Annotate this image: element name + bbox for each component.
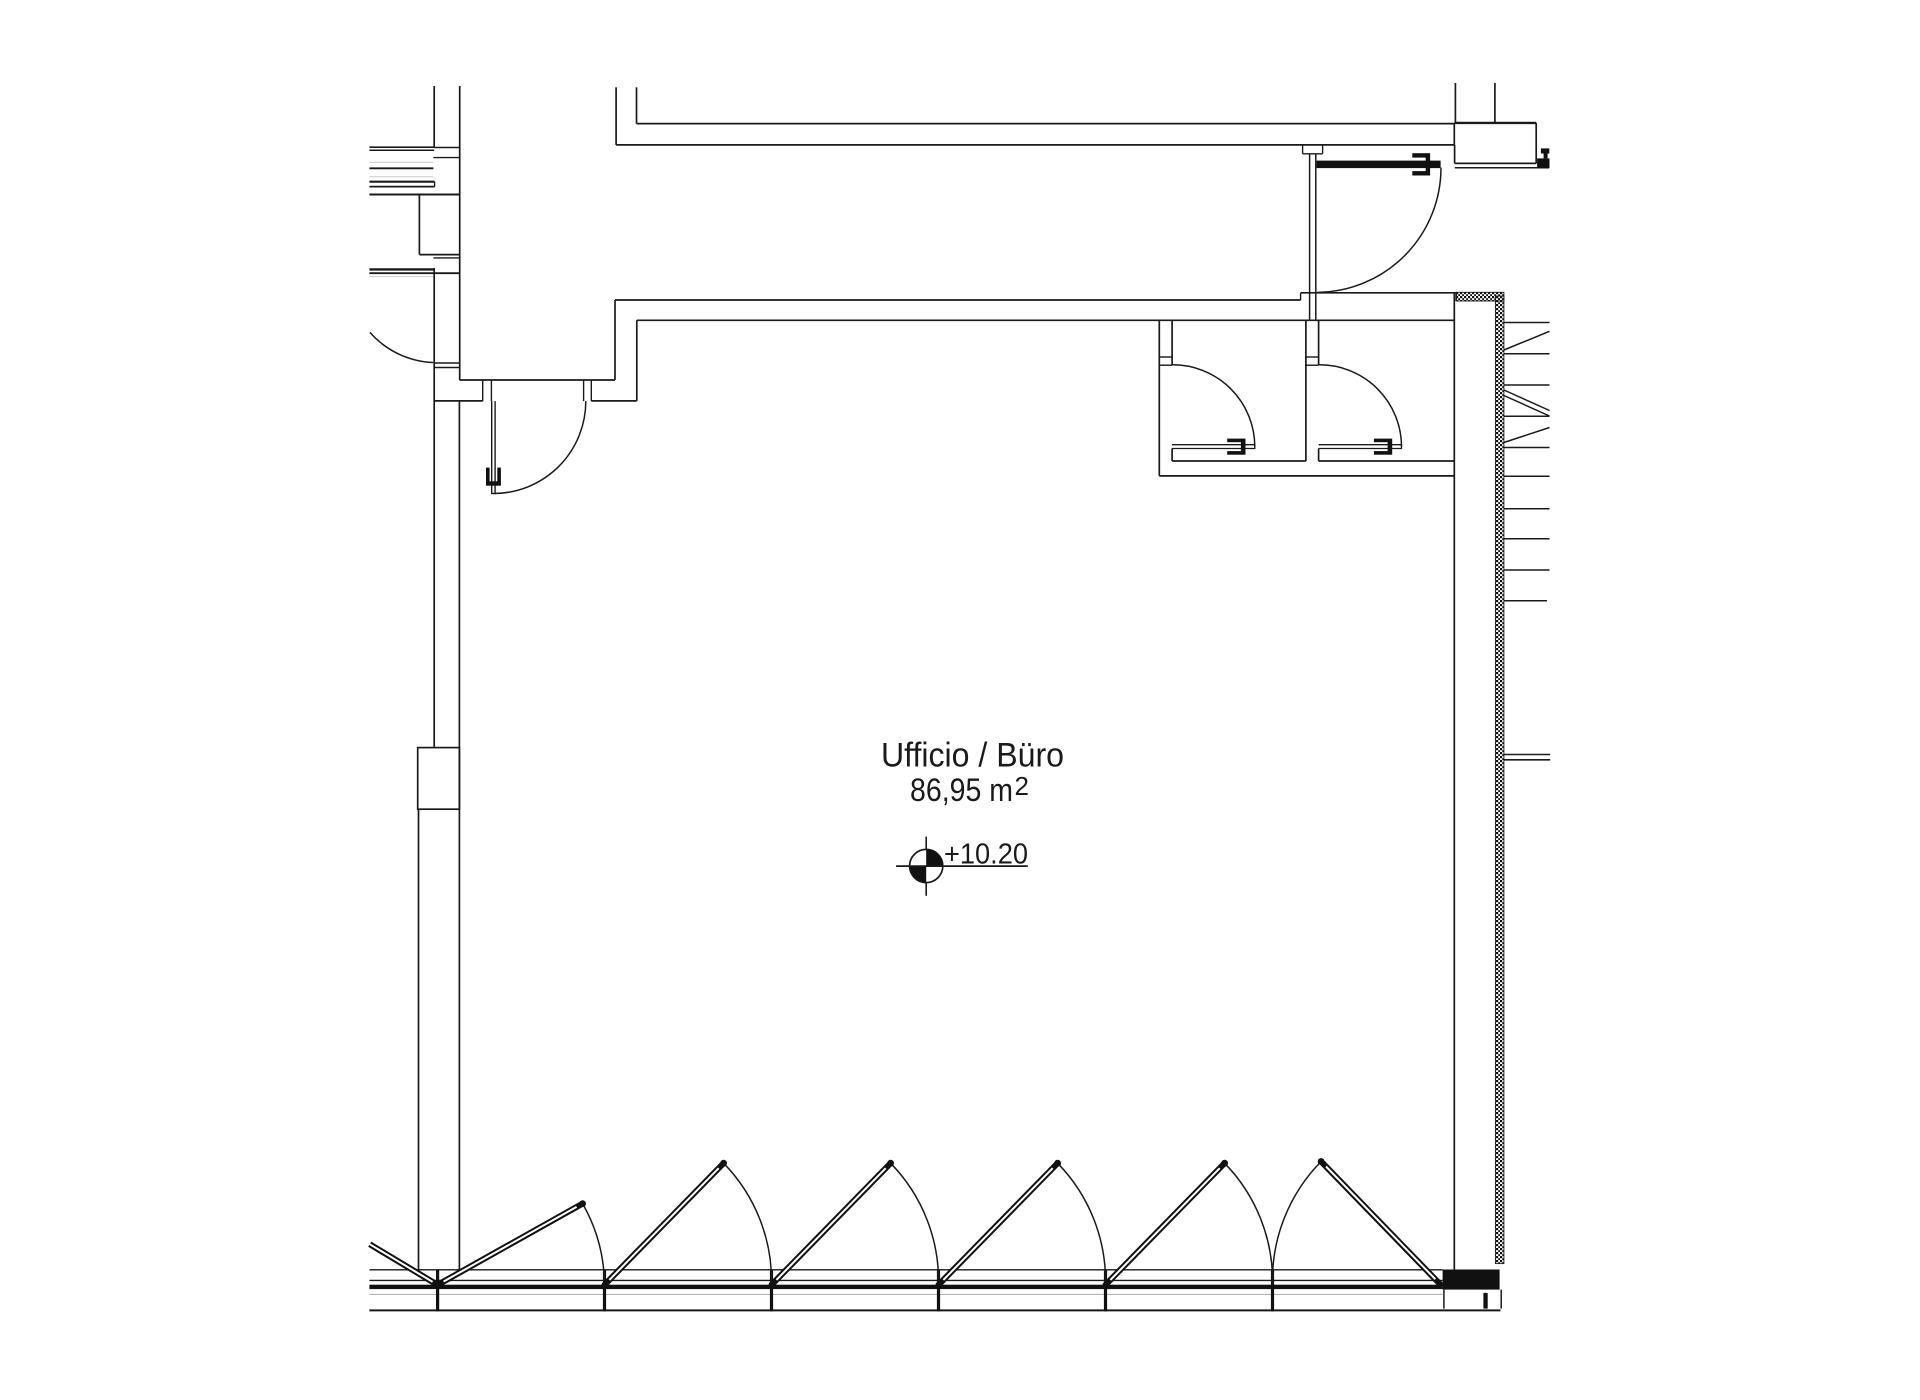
svg-text:86,95 m: 86,95 m	[910, 772, 1013, 808]
svg-text:+10.20: +10.20	[944, 839, 1028, 871]
svg-text:2: 2	[1015, 771, 1029, 801]
svg-text:Ufficio / Büro: Ufficio / Büro	[881, 737, 1064, 775]
